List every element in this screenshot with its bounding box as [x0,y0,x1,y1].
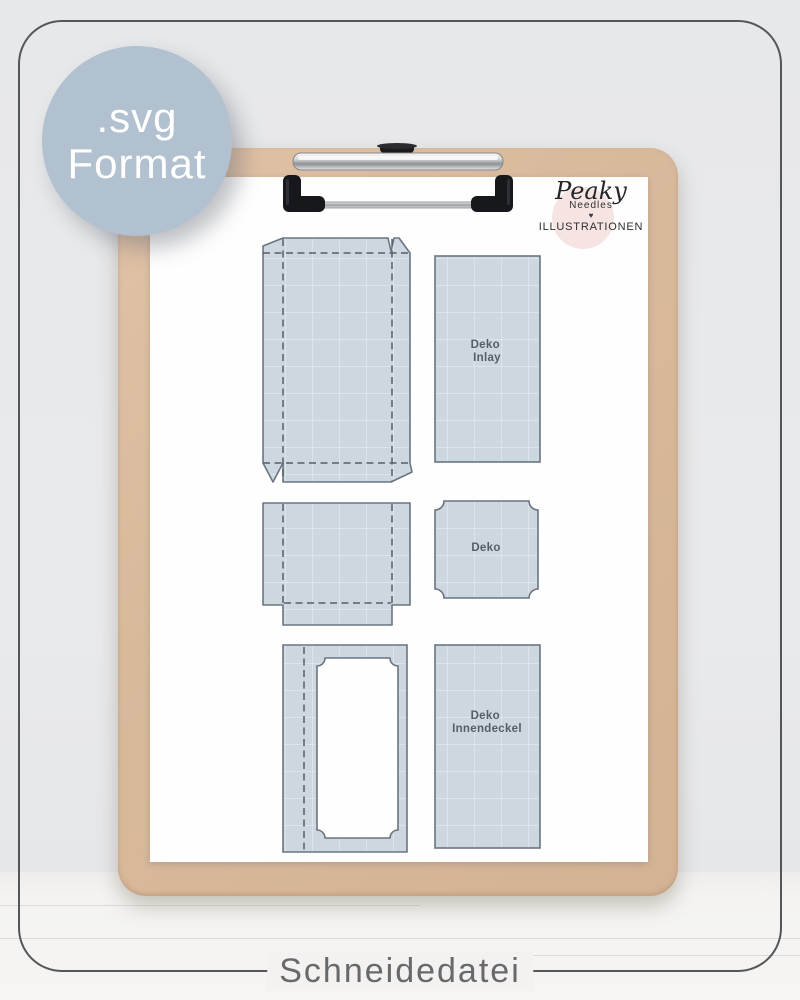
clip-grip-right [471,175,513,212]
floor-seam [0,905,420,906]
logo-tagline: ILLUSTRATIONEN [535,221,647,233]
template-window-frame [283,645,407,852]
template-deko-innendeckel: Deko Innendeckel [435,645,540,848]
floor-seam [470,955,800,956]
heart-icon: ♥ [535,211,647,220]
clip-grip-left [283,175,325,212]
cut-templates-graphic: Deko Inlay Deko [150,177,648,862]
template-box-dieline [263,238,412,482]
badge-line-1: .svg [96,95,177,141]
brand-logo: Peaky Needles ♥ ILLUSTRATIONEN [535,178,647,244]
template-deko-inlay: Deko Inlay [435,256,540,462]
template-deko: Deko [435,501,538,598]
template-sheet: Deko Inlay Deko [150,177,648,862]
logo-sub-name: Needles [535,201,647,211]
badge-line-2: Format [67,141,206,187]
clip-bar [293,153,503,170]
clip-lower-wire [317,202,479,208]
deko-label: Deko [471,542,500,554]
deko-inlay-label: Deko Inlay [471,339,504,364]
floor-seam [0,938,800,939]
template-small-box [263,503,410,625]
mockup-scene: Deko Inlay Deko [0,0,800,1000]
svg-format-badge: .svg Format [42,46,232,236]
clipboard-clip [283,138,513,246]
